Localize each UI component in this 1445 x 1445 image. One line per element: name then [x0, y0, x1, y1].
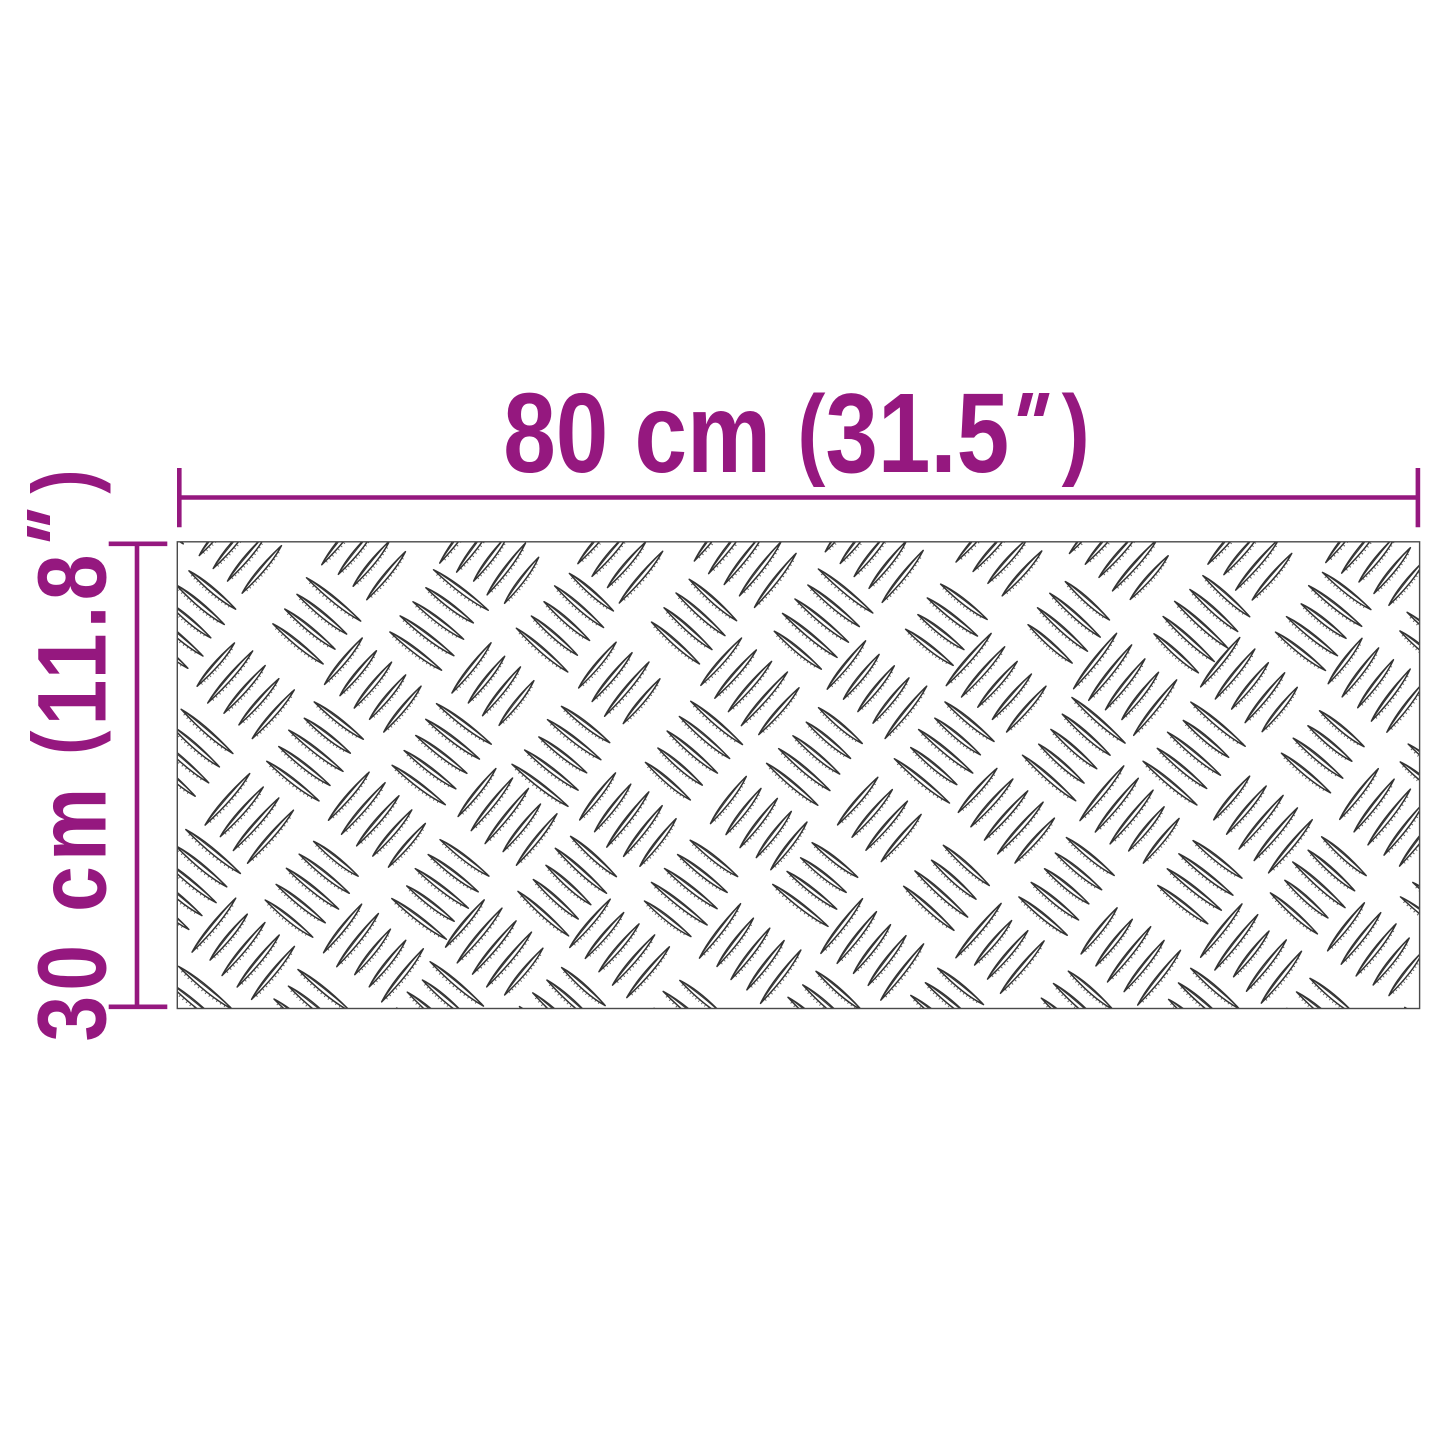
svg-text:80 cm (31.5 ): 80 cm (31.5 )	[503, 371, 1090, 497]
svg-text:30 cm (11.8 ): 30 cm (11.8 )	[15, 464, 127, 1041]
